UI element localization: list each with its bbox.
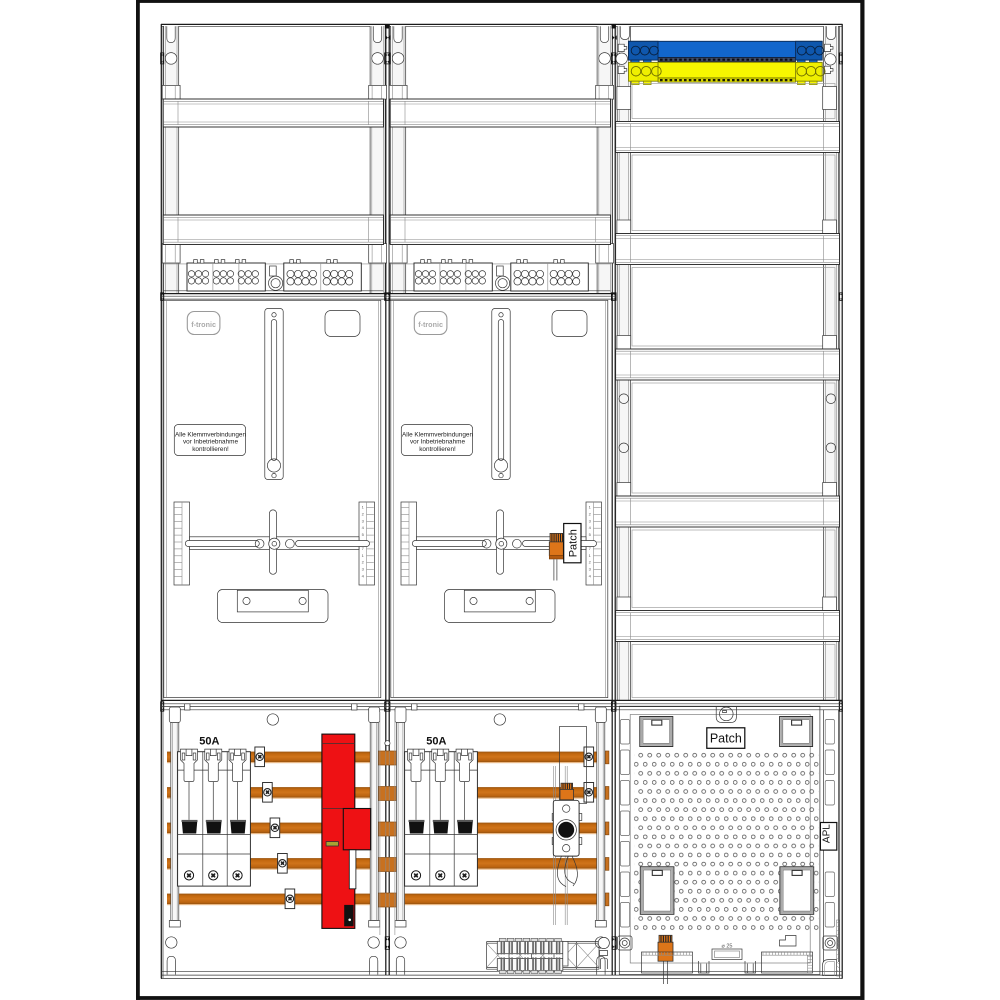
svg-text:50A: 50A (426, 735, 446, 747)
svg-text:Patch: Patch (710, 732, 742, 746)
svg-text:Patch: Patch (568, 529, 580, 557)
svg-text:50A: 50A (199, 735, 219, 747)
svg-text:⌀ 25: ⌀ 25 (722, 944, 733, 950)
svg-text:APL: APL (822, 824, 833, 843)
